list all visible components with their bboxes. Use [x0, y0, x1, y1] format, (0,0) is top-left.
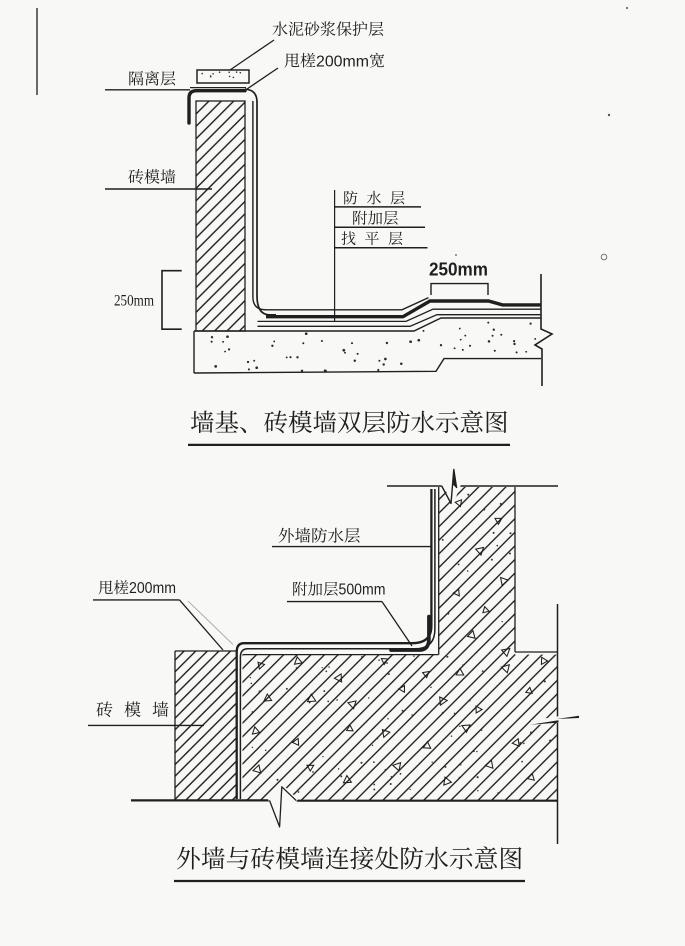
svg-text:500mm: 500mm [339, 582, 386, 599]
svg-text:200mm: 200mm [316, 53, 369, 70]
svg-text:200mm: 200mm [129, 580, 176, 597]
svg-text:250mm: 250mm [429, 260, 488, 280]
svg-text:250mm: 250mm [114, 293, 154, 310]
